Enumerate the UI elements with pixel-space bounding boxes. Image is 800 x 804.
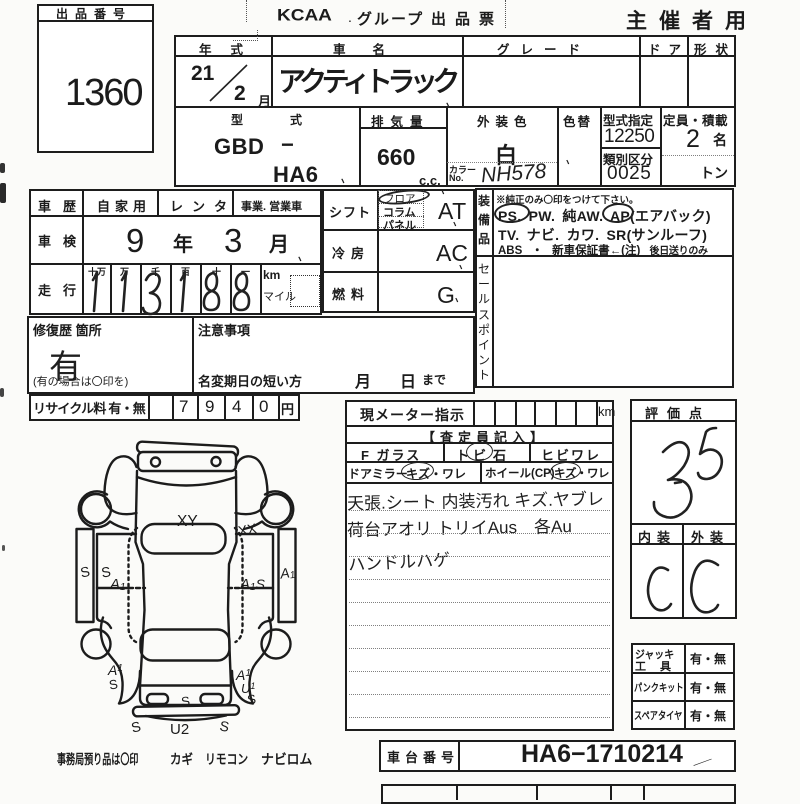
svg-text:A1: A1 (109, 576, 126, 593)
svg-text:S: S (129, 718, 142, 735)
svg-text:XY: XY (177, 513, 198, 530)
svg-text:A1: A1 (278, 564, 296, 583)
svg-text:XX: XX (237, 520, 259, 539)
svg-text:S: S (79, 563, 91, 581)
svg-text:S: S (108, 676, 119, 692)
svg-text:S: S (180, 693, 191, 709)
svg-text:A1S: A1S (239, 576, 266, 593)
svg-text:S: S (218, 717, 230, 734)
svg-text:U2: U2 (170, 721, 189, 735)
svg-text:S: S (246, 691, 257, 707)
